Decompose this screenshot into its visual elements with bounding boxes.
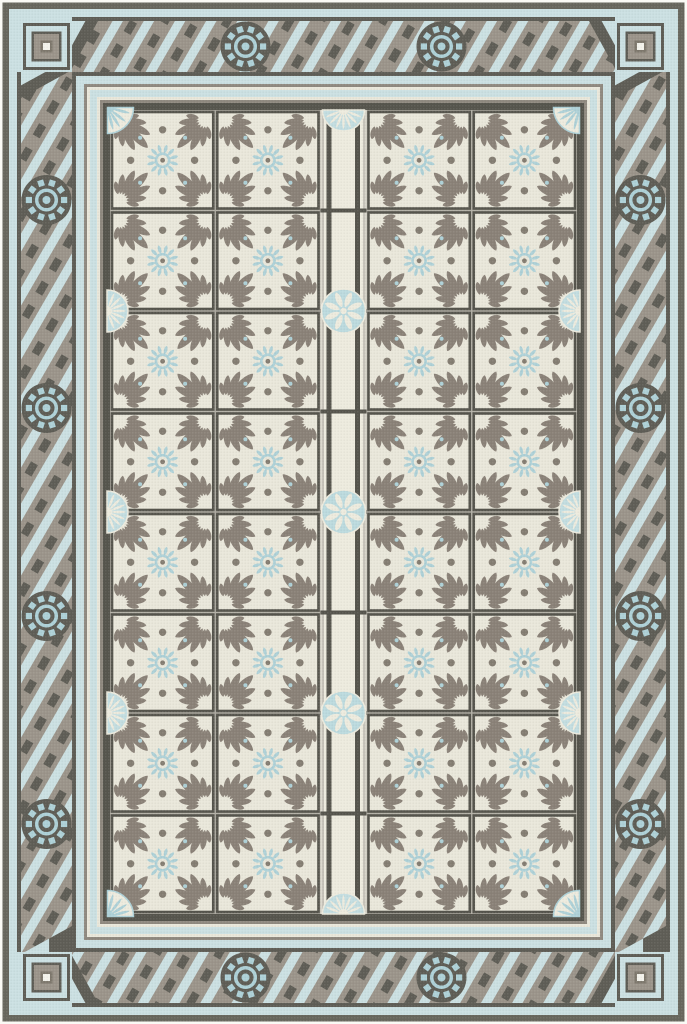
weave-texture xyxy=(3,3,685,1022)
rug-mat-photo xyxy=(0,0,687,1024)
rug-mat xyxy=(0,0,687,1024)
